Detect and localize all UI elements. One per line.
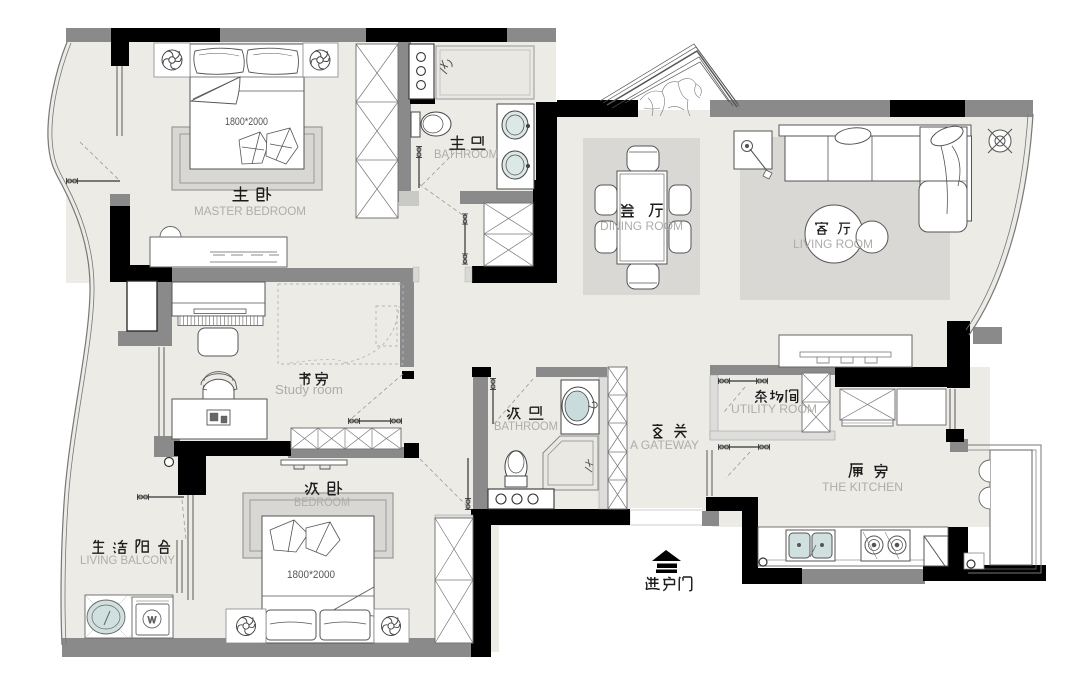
svg-text:UTILITY ROOM: UTILITY ROOM [731,402,817,416]
svg-text:THE KITCHEN: THE KITCHEN [822,480,903,494]
svg-text:BEDROOM: BEDROOM [294,495,350,509]
svg-text:1800*2000: 1800*2000 [225,116,268,128]
svg-text:A GATEWAY: A GATEWAY [630,438,699,452]
svg-text:BATHROOM: BATHROOM [494,419,558,433]
svg-text:1800*2000: 1800*2000 [287,569,335,581]
svg-text:MASTER BEDROOM: MASTER BEDROOM [194,204,306,218]
svg-text:LIVING ROOM: LIVING ROOM [793,237,873,251]
svg-text:Study room: Study room [275,382,343,397]
svg-text:DINING ROOM: DINING ROOM [600,219,683,233]
svg-text:W: W [148,615,157,625]
svg-text:LIVING BALCONY: LIVING BALCONY [80,553,175,567]
svg-text:BATHROOM: BATHROOM [434,147,498,161]
